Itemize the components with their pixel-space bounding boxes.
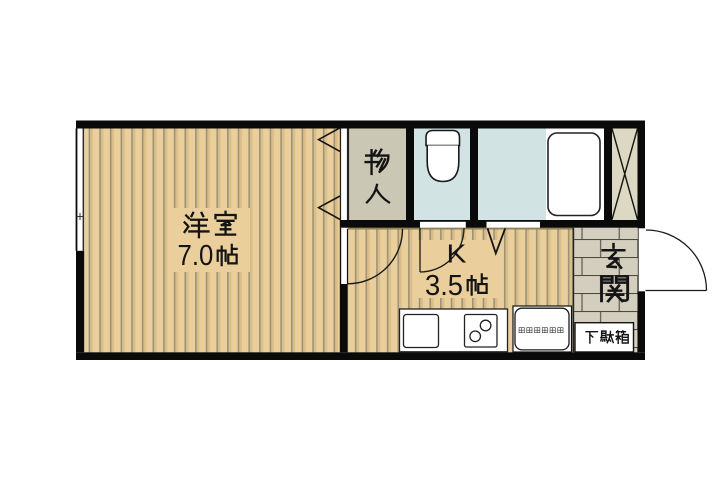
svg-text:7.0: 7.0 [178, 240, 214, 272]
svg-text:3.5: 3.5 [425, 270, 463, 302]
svg-text:K: K [447, 239, 468, 269]
